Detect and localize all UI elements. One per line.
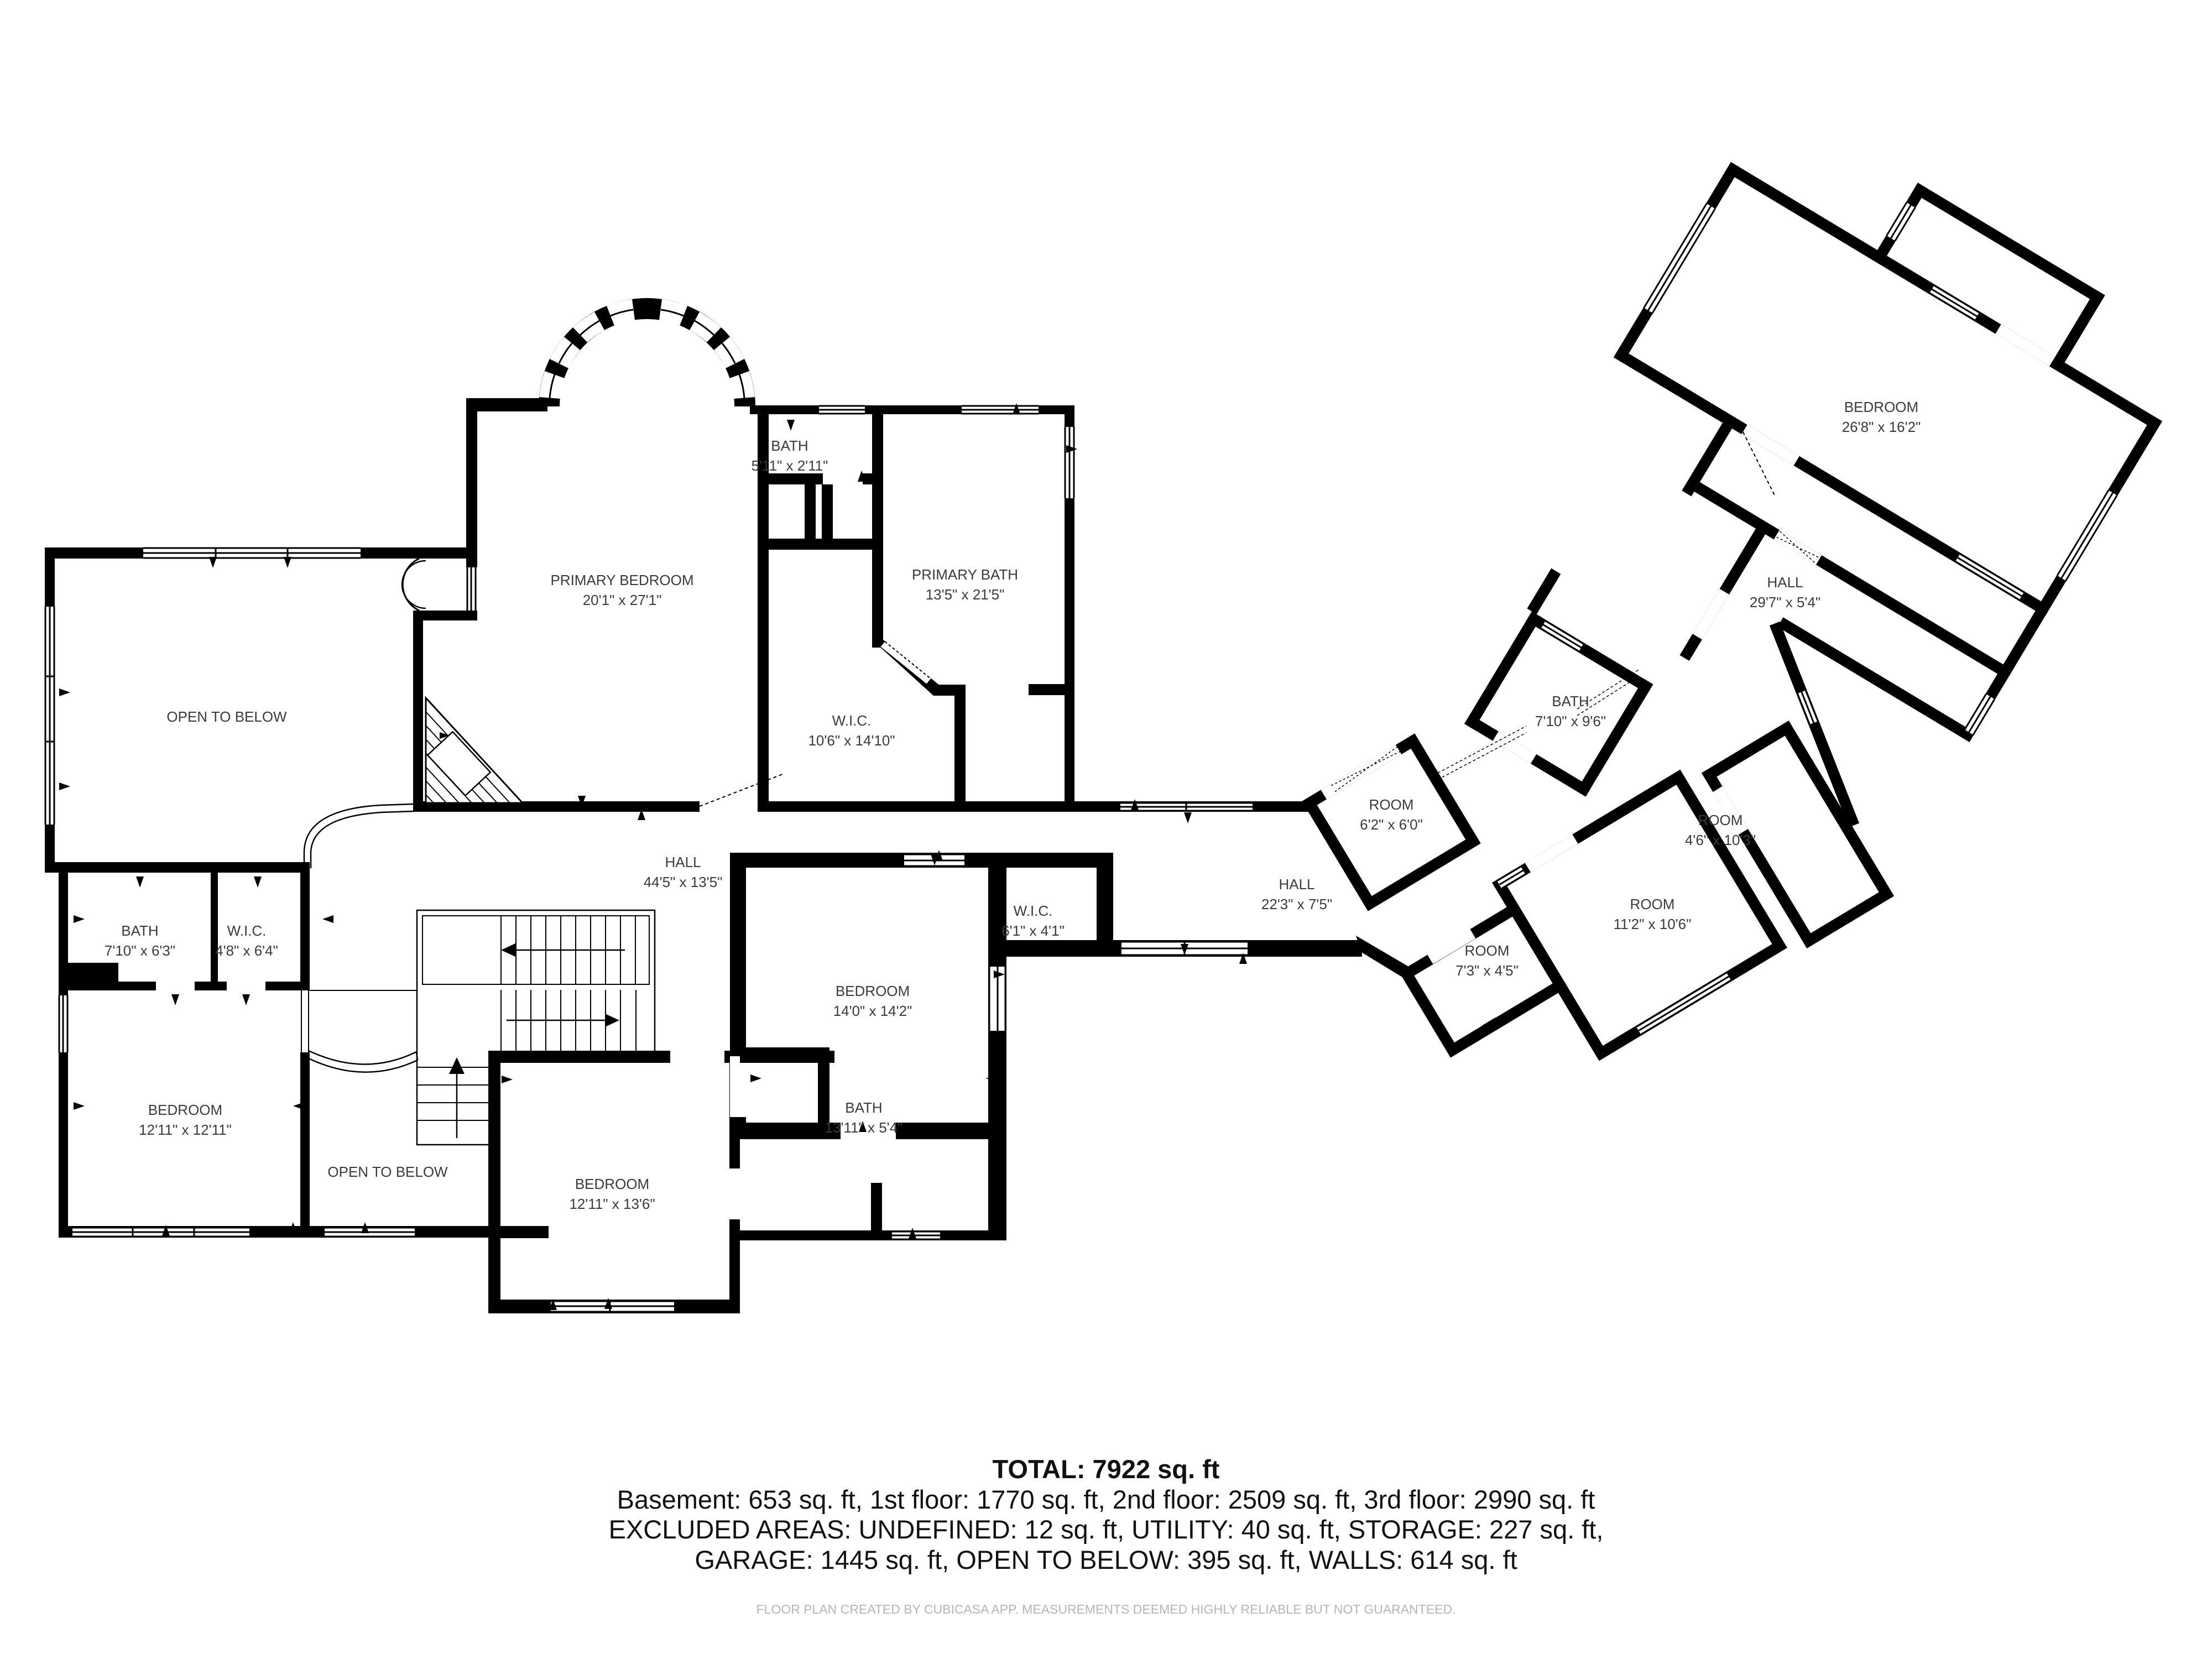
svg-text:BEDROOM: BEDROOM (575, 1176, 649, 1192)
svg-text:ROOM: ROOM (1698, 812, 1743, 828)
svg-text:4'6" x 10'3": 4'6" x 10'3" (1685, 832, 1756, 848)
svg-text:ROOM: ROOM (1630, 896, 1675, 912)
svg-text:BEDROOM: BEDROOM (148, 1102, 222, 1118)
svg-text:TOTAL: 7922 sq. ft: TOTAL: 7922 sq. ft (993, 1454, 1220, 1484)
svg-text:HALL: HALL (1279, 876, 1314, 893)
svg-text:PRIMARY BATH: PRIMARY BATH (912, 566, 1018, 583)
svg-text:EXCLUDED AREAS: UNDEFINED: 12: EXCLUDED AREAS: UNDEFINED: 12 sq. ft, UT… (609, 1515, 1604, 1544)
svg-text:BEDROOM: BEDROOM (1844, 399, 1918, 415)
svg-text:7'10" x 6'3": 7'10" x 6'3" (105, 942, 175, 959)
svg-text:ROOM: ROOM (1369, 796, 1414, 813)
svg-text:12'11" x 12'11": 12'11" x 12'11" (139, 1121, 232, 1138)
svg-text:PRIMARY BEDROOM: PRIMARY BEDROOM (550, 572, 693, 588)
svg-text:10'6" x 14'10": 10'6" x 14'10" (808, 732, 895, 749)
svg-text:GARAGE: 1445 sq. ft, OPEN TO B: GARAGE: 1445 sq. ft, OPEN TO BELOW: 395 … (695, 1545, 1517, 1574)
svg-text:Basement: 653 sq. ft, 1st floo: Basement: 653 sq. ft, 1st floor: 1770 sq… (617, 1485, 1595, 1514)
svg-text:BATH: BATH (771, 437, 808, 454)
svg-text:20'1" x 27'1": 20'1" x 27'1" (583, 592, 662, 608)
svg-text:FLOOR PLAN CREATED BY CUBICASA: FLOOR PLAN CREATED BY CUBICASA APP. MEAS… (757, 1602, 1456, 1616)
svg-text:BEDROOM: BEDROOM (836, 983, 910, 999)
svg-text:HALL: HALL (665, 854, 701, 870)
svg-text:ROOM: ROOM (1465, 942, 1510, 959)
svg-text:12'11" x 13'6": 12'11" x 13'6" (569, 1196, 655, 1212)
svg-text:29'7" x 5'4": 29'7" x 5'4" (1750, 594, 1820, 611)
svg-text:BATH: BATH (845, 1099, 882, 1116)
svg-text:7'3" x 4'5": 7'3" x 4'5" (1455, 962, 1519, 979)
svg-text:14'0" x 14'2": 14'0" x 14'2" (833, 1003, 912, 1019)
svg-text:4'8" x 6'4": 4'8" x 6'4" (215, 942, 278, 959)
svg-text:6'2" x 6'0": 6'2" x 6'0" (1360, 816, 1423, 833)
svg-text:7'10" x 9'6": 7'10" x 9'6" (1535, 713, 1606, 729)
svg-text:22'3" x 7'5": 22'3" x 7'5" (1261, 896, 1332, 912)
svg-text:W.I.C.: W.I.C. (1014, 902, 1053, 919)
svg-text:BATH: BATH (121, 922, 158, 939)
svg-text:BATH: BATH (1552, 693, 1589, 709)
svg-text:13'11" x 5'4": 13'11" x 5'4" (825, 1119, 903, 1136)
svg-text:5'11" x 2'11": 5'11" x 2'11" (752, 457, 828, 474)
svg-text:26'8" x 16'2": 26'8" x 16'2" (1842, 419, 1921, 435)
svg-text:OPEN TO BELOW: OPEN TO BELOW (166, 708, 287, 725)
svg-text:W.I.C.: W.I.C. (227, 922, 267, 939)
svg-text:OPEN TO BELOW: OPEN TO BELOW (327, 1164, 448, 1180)
svg-text:11'2" x 10'6": 11'2" x 10'6" (1614, 916, 1692, 932)
svg-text:W.I.C.: W.I.C. (832, 712, 872, 729)
svg-text:6'1" x 4'1": 6'1" x 4'1" (1001, 922, 1065, 939)
svg-text:44'5" x 13'5": 44'5" x 13'5" (644, 874, 723, 890)
svg-text:13'5" x 21'5": 13'5" x 21'5" (926, 586, 1005, 603)
svg-text:HALL: HALL (1767, 574, 1803, 591)
